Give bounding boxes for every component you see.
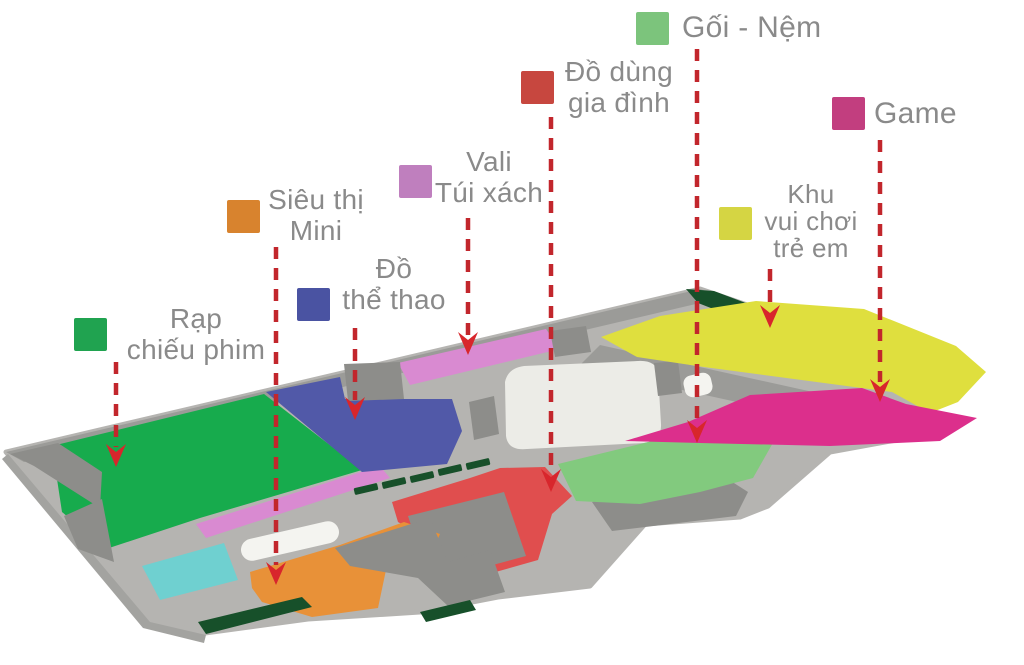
legend-item-do-dung-gia-dinh: Đồ dùng gia đình xyxy=(556,56,682,118)
legend-label-line: Gối - Nệm xyxy=(682,11,821,44)
legend-swatch-do-the-thao xyxy=(297,288,330,321)
legend-label-line: trẻ em xyxy=(752,235,870,262)
legend-label-line: Túi xách xyxy=(430,177,548,208)
legend-label-line: Mini xyxy=(256,215,376,246)
legend-swatch-vali-tui-xach xyxy=(399,165,432,198)
legend-swatch-goi-nem xyxy=(636,12,669,45)
legend-label-line: Rạp xyxy=(112,303,280,334)
legend-label-line: Khu xyxy=(752,181,870,208)
legend-swatch-rap-chieu-phim xyxy=(74,318,107,351)
legend-label-line: Siêu thị xyxy=(256,184,376,215)
legend-label-line: Đồ dùng xyxy=(556,56,682,87)
structure-block-b xyxy=(550,326,591,357)
mall-floor-plan-infographic: Rạp chiếu phim Siêu thị Mini Đồ thể thao… xyxy=(0,0,1024,665)
atrium xyxy=(505,361,661,449)
legend-swatch-khu-vui-choi-tre-em xyxy=(719,207,752,240)
legend-label-line: Game xyxy=(874,97,957,130)
legend-label-line: chiếu phim xyxy=(112,334,280,365)
legend-item-khu-vui-choi-tre-em: Khu vui chơi trẻ em xyxy=(752,181,870,262)
legend-label-line: Vali xyxy=(430,146,548,177)
legend-swatch-game xyxy=(832,97,865,130)
legend-label-line: thể thao xyxy=(330,284,458,315)
legend-swatch-do-dung-gia-dinh xyxy=(521,71,554,104)
structure-block-c xyxy=(469,396,499,440)
structure-block-d xyxy=(654,361,682,396)
legend-item-sieu-thi-mini: Siêu thị Mini xyxy=(256,184,376,246)
legend-label-line: Đồ xyxy=(330,253,458,284)
legend-item-do-the-thao: Đồ thể thao xyxy=(330,253,458,315)
legend-item-vali-tui-xach: Vali Túi xách xyxy=(430,146,548,208)
legend-item-goi-nem: Gối - Nệm xyxy=(682,11,821,44)
legend-label-line: gia đình xyxy=(556,87,682,118)
legend-label-line: vui chơi xyxy=(752,208,870,235)
legend-item-game: Game xyxy=(874,97,957,130)
legend-item-rap-chieu-phim: Rạp chiếu phim xyxy=(112,303,280,365)
